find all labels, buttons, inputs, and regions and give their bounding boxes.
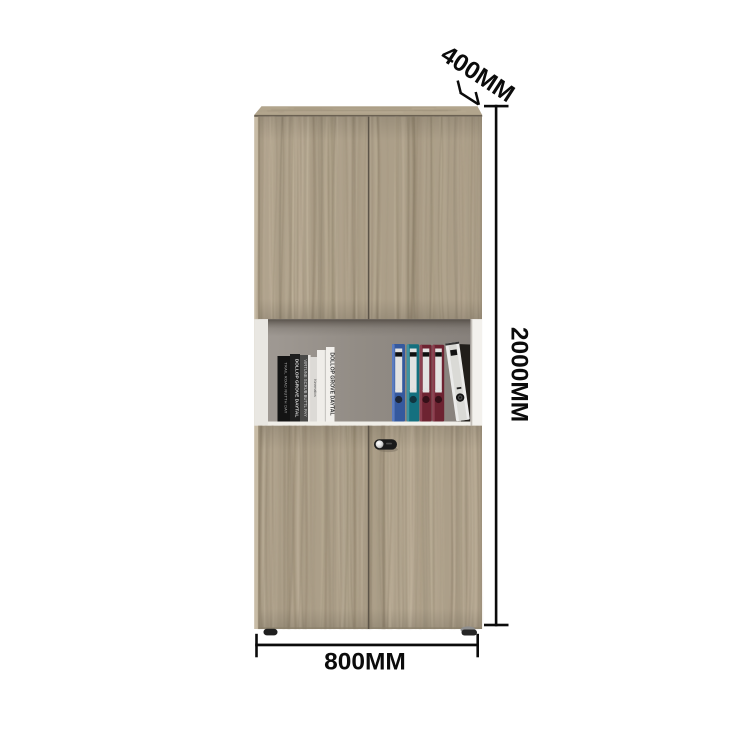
svg-text:Kinematics: Kinematics: [313, 379, 317, 397]
svg-text:DOLLOP GROVE DAYTAL: DOLLOP GROVE DAYTAL: [293, 359, 299, 418]
svg-text:VIRTUNE SCRUB BUTTL PAY: VIRTUNE SCRUB BUTTL PAY: [303, 359, 308, 417]
svg-text:800MM: 800MM: [324, 649, 406, 676]
svg-text:2000MM: 2000MM: [506, 327, 533, 422]
svg-text:DOLLOP GROVE DAYTAL: DOLLOP GROVE DAYTAL: [329, 352, 335, 416]
svg-text:TRAIL ROAD RUTTH DAY: TRAIL ROAD RUTTH DAY: [284, 362, 288, 413]
